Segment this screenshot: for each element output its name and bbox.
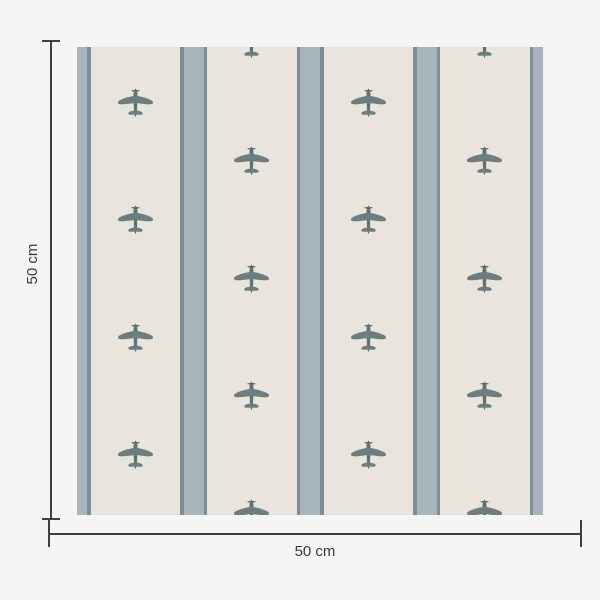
airplane-icon	[233, 499, 270, 515]
airplane-icon	[233, 381, 270, 414]
width-dimension-right-cap	[580, 520, 582, 547]
stripe-light-band	[77, 47, 87, 515]
airplane-icon	[466, 264, 503, 297]
stripe-light-band	[184, 47, 204, 515]
stripe-light-band	[533, 47, 543, 515]
airplane-icon	[117, 440, 154, 473]
airplane-icon	[117, 88, 154, 121]
airplane-icon	[117, 323, 154, 356]
airplane-icon	[466, 47, 503, 62]
height-dimension-top-cap	[42, 40, 60, 42]
width-dimension-line	[49, 533, 582, 535]
height-dimension-line	[50, 41, 52, 519]
stripe-light-band	[417, 47, 437, 515]
airplane-icon	[117, 205, 154, 238]
width-label: 50 cm	[265, 542, 365, 562]
wallpaper-preview: 50 cm 50 cm	[0, 0, 600, 600]
airplane-icon	[350, 88, 387, 121]
width-dimension-left-cap	[48, 520, 50, 547]
airplane-icon	[466, 499, 503, 515]
stripe-light-band	[300, 47, 320, 515]
airplane-icon	[350, 205, 387, 238]
height-dimension-bottom-cap	[42, 518, 60, 520]
wallpaper-swatch	[77, 47, 543, 515]
airplane-icon	[233, 146, 270, 179]
airplane-icon	[350, 440, 387, 473]
airplane-icon	[350, 323, 387, 356]
airplane-icon	[466, 381, 503, 414]
airplane-icon	[466, 146, 503, 179]
airplane-icon	[233, 264, 270, 297]
airplane-icon	[233, 47, 270, 62]
height-label: 50 cm	[23, 234, 43, 294]
